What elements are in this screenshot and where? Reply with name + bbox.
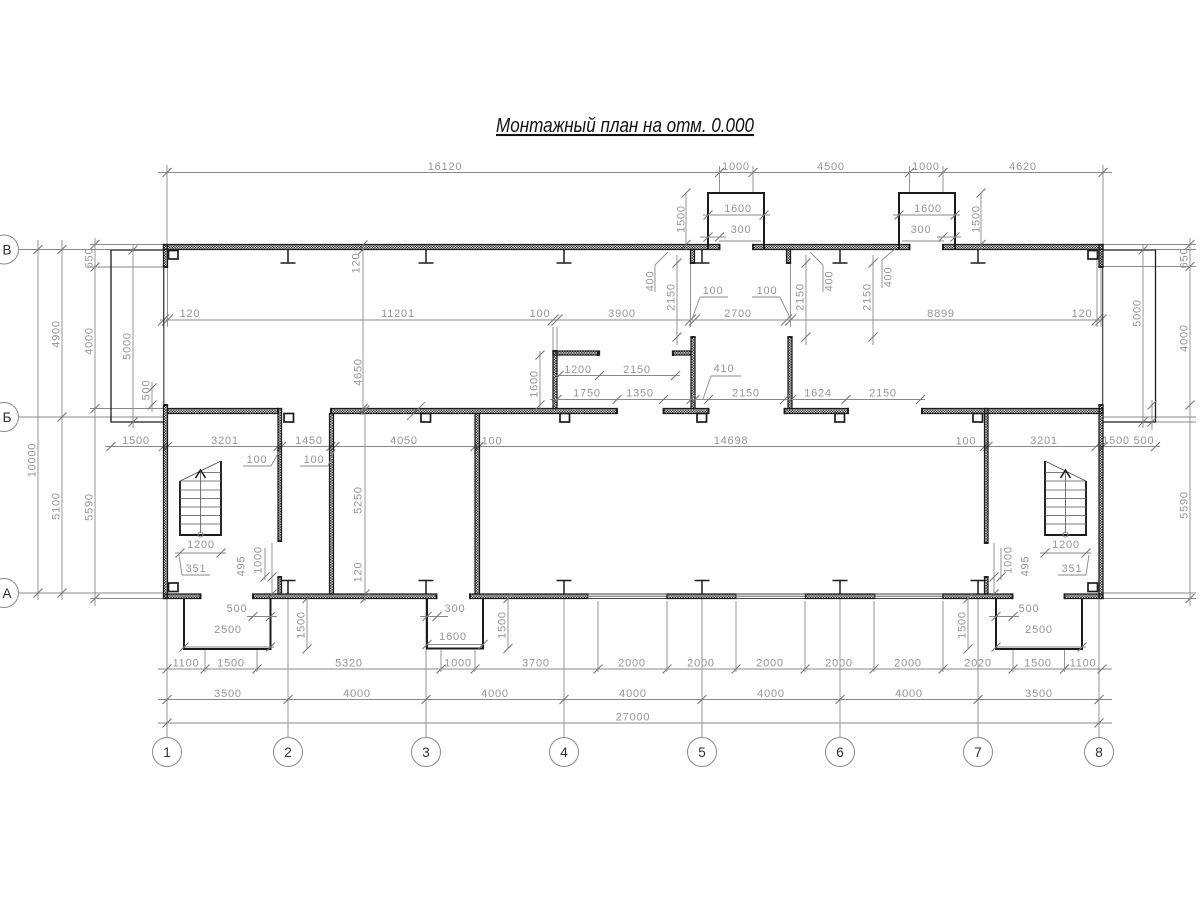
svg-text:4000: 4000 xyxy=(1179,324,1191,352)
svg-text:4000: 4000 xyxy=(895,688,923,700)
svg-text:1500: 1500 xyxy=(296,611,308,639)
svg-text:4620: 4620 xyxy=(1009,161,1037,173)
svg-text:1750: 1750 xyxy=(573,388,601,400)
svg-text:1: 1 xyxy=(163,745,171,760)
svg-text:495: 495 xyxy=(1020,556,1032,577)
svg-text:4: 4 xyxy=(560,745,568,760)
svg-text:100: 100 xyxy=(247,454,268,466)
svg-text:2150: 2150 xyxy=(732,388,760,400)
svg-text:5100: 5100 xyxy=(51,492,63,520)
svg-text:500: 500 xyxy=(1019,603,1040,615)
svg-text:351: 351 xyxy=(1062,563,1083,575)
svg-text:3500: 3500 xyxy=(1025,688,1053,700)
svg-text:100: 100 xyxy=(757,285,778,297)
svg-text:2500: 2500 xyxy=(214,624,242,636)
svg-text:1200: 1200 xyxy=(1052,539,1080,551)
svg-text:300: 300 xyxy=(731,224,752,236)
svg-text:2150: 2150 xyxy=(862,283,874,311)
svg-text:2700: 2700 xyxy=(724,308,752,320)
svg-text:300: 300 xyxy=(911,224,932,236)
svg-text:500: 500 xyxy=(1134,435,1155,447)
svg-text:1200: 1200 xyxy=(187,539,215,551)
svg-text:4000: 4000 xyxy=(84,327,96,355)
svg-text:4000: 4000 xyxy=(757,688,785,700)
svg-text:5250: 5250 xyxy=(353,486,365,514)
svg-text:2150: 2150 xyxy=(795,283,807,311)
svg-text:1000: 1000 xyxy=(253,546,265,574)
svg-text:1600: 1600 xyxy=(439,631,467,643)
svg-text:1200: 1200 xyxy=(564,364,592,376)
svg-text:1600: 1600 xyxy=(914,203,942,215)
svg-text:4000: 4000 xyxy=(619,688,647,700)
svg-text:650: 650 xyxy=(1179,248,1191,269)
svg-text:2000: 2000 xyxy=(618,658,646,670)
svg-text:3: 3 xyxy=(422,745,430,760)
svg-text:300: 300 xyxy=(445,603,466,615)
svg-text:1500: 1500 xyxy=(1102,435,1130,447)
svg-text:3201: 3201 xyxy=(211,435,239,447)
svg-text:8899: 8899 xyxy=(927,308,955,320)
svg-text:1000: 1000 xyxy=(1003,546,1015,574)
svg-text:120: 120 xyxy=(353,562,365,583)
svg-text:16120: 16120 xyxy=(428,161,463,173)
svg-text:650: 650 xyxy=(84,248,96,269)
svg-text:2150: 2150 xyxy=(666,283,678,311)
svg-text:3900: 3900 xyxy=(608,308,636,320)
svg-text:1624: 1624 xyxy=(804,388,832,400)
svg-text:1600: 1600 xyxy=(529,370,541,398)
svg-text:6: 6 xyxy=(836,745,844,760)
svg-text:2020: 2020 xyxy=(964,658,992,670)
svg-text:1000: 1000 xyxy=(912,161,940,173)
svg-text:100: 100 xyxy=(530,308,551,320)
svg-text:А: А xyxy=(2,586,11,601)
svg-text:1500: 1500 xyxy=(217,658,245,670)
svg-text:120: 120 xyxy=(1072,308,1093,320)
svg-text:1000: 1000 xyxy=(722,161,750,173)
svg-text:3700: 3700 xyxy=(522,658,550,670)
svg-text:5: 5 xyxy=(698,745,706,760)
svg-text:4050: 4050 xyxy=(390,435,418,447)
svg-text:11201: 11201 xyxy=(381,308,415,320)
svg-text:2150: 2150 xyxy=(623,364,651,376)
svg-text:410: 410 xyxy=(714,363,735,375)
svg-text:100: 100 xyxy=(482,436,503,448)
svg-text:Б: Б xyxy=(3,410,12,425)
svg-text:В: В xyxy=(2,243,11,258)
svg-text:5320: 5320 xyxy=(335,658,363,670)
svg-text:1500: 1500 xyxy=(122,435,150,447)
svg-text:495: 495 xyxy=(236,556,248,577)
svg-text:351: 351 xyxy=(186,563,207,575)
svg-text:4650: 4650 xyxy=(353,358,365,386)
svg-text:100: 100 xyxy=(956,436,977,448)
svg-text:1100: 1100 xyxy=(173,658,200,670)
svg-text:4000: 4000 xyxy=(343,688,371,700)
svg-text:2150: 2150 xyxy=(869,388,897,400)
svg-text:120: 120 xyxy=(351,253,363,274)
svg-text:1100: 1100 xyxy=(1070,658,1097,670)
svg-text:2000: 2000 xyxy=(756,658,784,670)
svg-text:1500: 1500 xyxy=(957,611,969,639)
svg-text:27000: 27000 xyxy=(616,712,651,724)
svg-text:1500: 1500 xyxy=(971,205,983,233)
svg-text:5590: 5590 xyxy=(1179,491,1191,519)
svg-text:4000: 4000 xyxy=(481,688,509,700)
svg-text:2: 2 xyxy=(284,745,292,760)
svg-text:5000: 5000 xyxy=(122,332,134,360)
svg-text:Монтажный план на отм. 0.000: Монтажный план на отм. 0.000 xyxy=(496,114,754,137)
svg-text:8: 8 xyxy=(1095,745,1103,760)
svg-text:1500: 1500 xyxy=(1024,658,1052,670)
svg-text:10000: 10000 xyxy=(27,443,39,478)
svg-text:500: 500 xyxy=(141,380,153,401)
svg-text:400: 400 xyxy=(824,271,836,292)
svg-text:1500: 1500 xyxy=(497,611,509,639)
svg-text:1500: 1500 xyxy=(676,205,688,233)
svg-text:2500: 2500 xyxy=(1025,624,1053,636)
svg-text:1350: 1350 xyxy=(626,388,654,400)
svg-text:400: 400 xyxy=(883,267,895,288)
svg-text:2000: 2000 xyxy=(894,658,922,670)
svg-text:2000: 2000 xyxy=(825,658,853,670)
svg-text:500: 500 xyxy=(227,603,248,615)
svg-text:4900: 4900 xyxy=(51,320,63,348)
svg-text:100: 100 xyxy=(304,454,325,466)
svg-text:120: 120 xyxy=(180,308,201,320)
svg-text:2000: 2000 xyxy=(687,658,715,670)
svg-text:100: 100 xyxy=(703,285,724,297)
svg-text:5000: 5000 xyxy=(1132,299,1144,327)
svg-text:5590: 5590 xyxy=(84,493,96,521)
svg-text:1000: 1000 xyxy=(444,658,472,670)
svg-text:3500: 3500 xyxy=(214,688,242,700)
svg-text:1450: 1450 xyxy=(295,435,323,447)
svg-text:1600: 1600 xyxy=(724,203,752,215)
svg-text:4500: 4500 xyxy=(817,161,845,173)
svg-text:3201: 3201 xyxy=(1030,435,1058,447)
svg-text:14698: 14698 xyxy=(714,435,749,447)
svg-text:7: 7 xyxy=(974,745,982,760)
